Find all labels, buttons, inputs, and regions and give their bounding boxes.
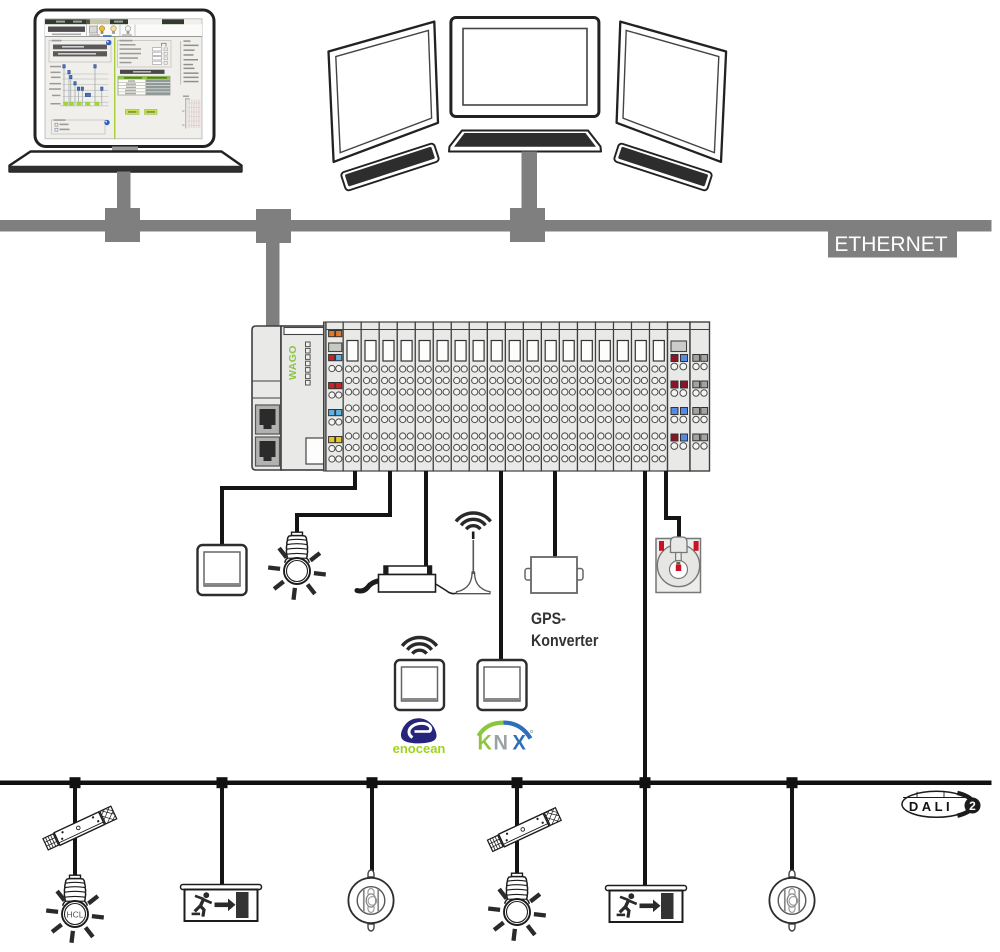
svg-text:Konverter: Konverter — [531, 632, 598, 650]
svg-text:2: 2 — [969, 799, 976, 813]
svg-text:WAGO: WAGO — [287, 345, 299, 380]
svg-text:ETHERNET: ETHERNET — [834, 233, 947, 256]
svg-text:enocean: enocean — [393, 741, 446, 756]
svg-text:GPS-: GPS- — [531, 610, 566, 628]
svg-text:DALI: DALI — [909, 799, 953, 814]
svg-text:HCL: HCL — [66, 910, 83, 920]
svg-text:X: X — [513, 731, 526, 755]
svg-text:K: K — [478, 731, 492, 755]
svg-text:N: N — [494, 731, 508, 755]
